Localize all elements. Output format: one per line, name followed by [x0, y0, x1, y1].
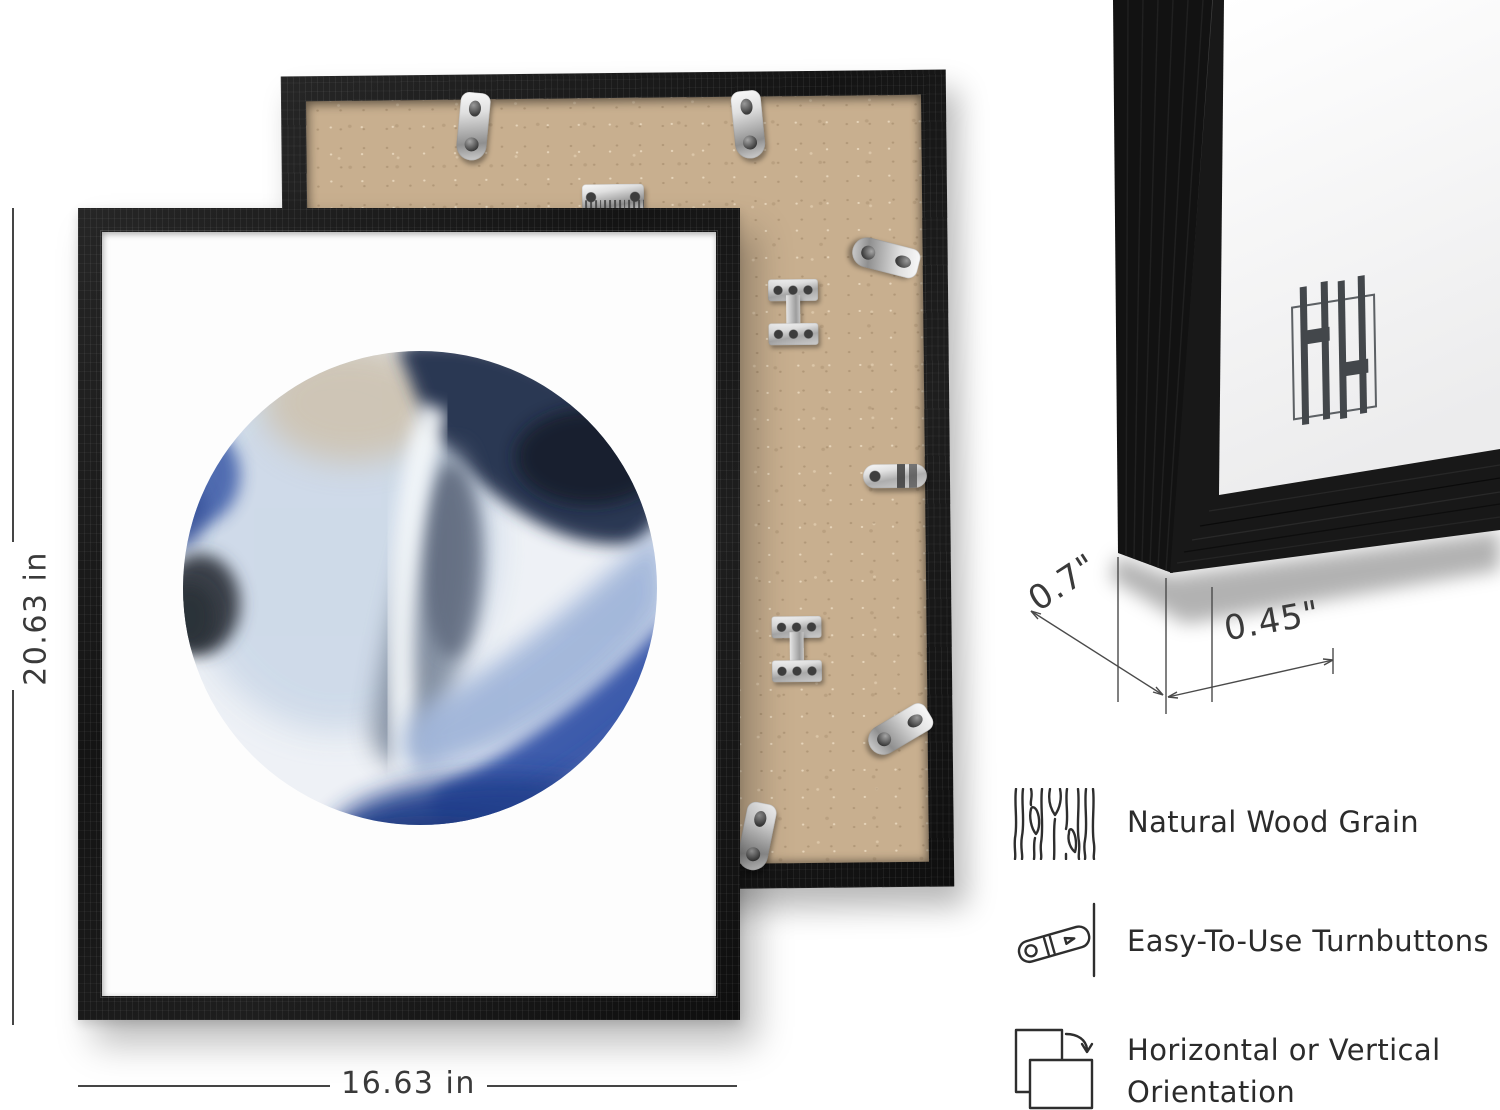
orientation-icon [1014, 1014, 1106, 1110]
feature-label-wood-grain: Natural Wood Grain [1127, 805, 1419, 839]
frame-corner-profile: 0.7" 0.45" [990, 0, 1500, 730]
product-image: 20.63 in 16.63 in [0, 0, 1500, 1110]
width-dimension-label: 16.63 in [330, 1066, 487, 1101]
depth-dimension-label: 0.7" [1021, 546, 1105, 620]
width-dimension-line-left [78, 1085, 330, 1087]
turnbutton-icon [1008, 902, 1108, 978]
corner-bracket [768, 279, 819, 346]
horizontal-turnbutton-tab [863, 464, 927, 489]
height-dimension-label: 20.63 in [19, 519, 54, 719]
height-dimension-line-bottom [12, 690, 14, 1025]
wood-grain-icon [1012, 788, 1096, 860]
frame-mat [1219, 0, 1500, 495]
corner-bracket [771, 616, 822, 683]
width-dimension-line-right [487, 1085, 737, 1087]
feature-label-orientation-line1: Horizontal or Vertical [1127, 1033, 1441, 1067]
watercolor-art [102, 232, 716, 996]
feature-label-turnbuttons: Easy-To-Use Turnbuttons [1127, 924, 1489, 958]
feature-label-orientation-line2: Orientation [1127, 1075, 1295, 1109]
bracket-plate [772, 660, 822, 683]
art-print-paper [102, 232, 716, 996]
bracket-plate [768, 323, 818, 346]
frame-front-view [78, 208, 740, 1020]
height-dimension-line-top [12, 208, 14, 542]
sawtooth-hanger [582, 184, 644, 211]
